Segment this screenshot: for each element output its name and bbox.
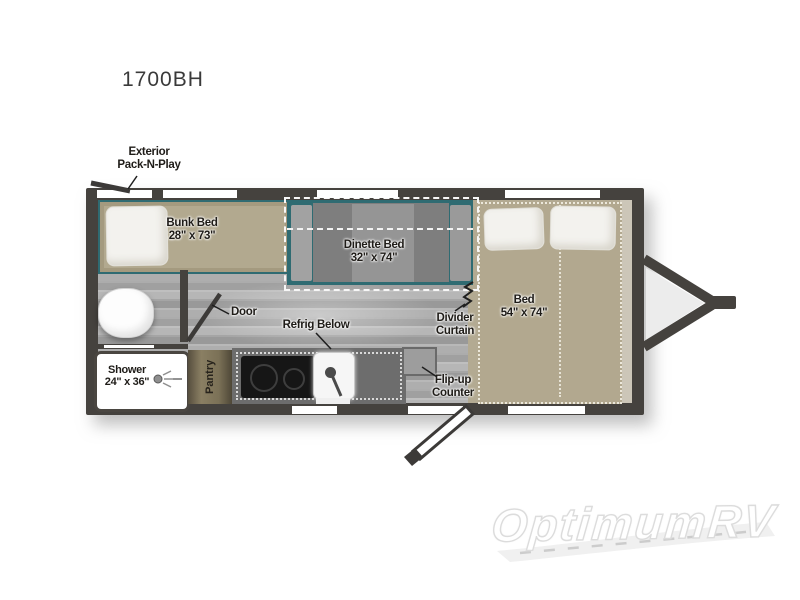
divider-curtain-label: Divider Curtain xyxy=(425,312,485,337)
window-bed-top xyxy=(505,190,600,198)
flip-up-counter xyxy=(402,347,437,376)
main-bed-name: Bed xyxy=(514,294,535,306)
window-bed-bottom xyxy=(508,406,585,414)
refrig-below-text: Refrig Below xyxy=(283,319,350,331)
refrig-below-label: Refrig Below xyxy=(266,319,366,332)
hitch-arm-top xyxy=(644,259,712,301)
dinette-armrest-right xyxy=(450,205,471,281)
burner-icon xyxy=(250,364,278,392)
dinette-bed-name: Dinette Bed xyxy=(344,239,405,251)
sink-base xyxy=(316,398,350,404)
entry-door-opening xyxy=(408,406,463,414)
dinette-bed-label: Dinette Bed 32" x 74" xyxy=(324,239,424,264)
window-bunk xyxy=(163,190,237,198)
window-dinette xyxy=(317,190,398,198)
shower-label: Shower 24" x 36" xyxy=(96,364,158,388)
flip-up-counter-label: Flip-up Counter xyxy=(423,374,483,399)
watermark-logo: OptimumRV xyxy=(489,494,778,553)
pack-n-play-opening xyxy=(97,190,152,198)
shower-name: Shower xyxy=(108,364,146,376)
bunk-bed-name: Bunk Bed xyxy=(166,217,217,229)
exterior-pack-n-play-label: Exterior Pack-N-Play xyxy=(99,146,199,171)
flip-up-line1: Flip-up xyxy=(435,374,471,386)
toilet xyxy=(98,288,154,338)
hitch-tongue-icon xyxy=(708,296,736,309)
bed-pillow-left xyxy=(483,207,544,251)
exterior-label-line2: Pack-N-Play xyxy=(117,159,180,171)
dinette-armrest-left xyxy=(291,205,312,281)
main-bed-label: Bed 54" x 74" xyxy=(474,294,574,319)
divider-line1: Divider xyxy=(437,312,474,324)
bunk-bed-size: 28" x 73" xyxy=(169,230,216,242)
hitch-arm-bottom xyxy=(644,305,712,347)
bed-pillow-right xyxy=(550,205,617,250)
window-kitchen xyxy=(292,406,337,414)
divider-line2: Curtain xyxy=(436,325,474,337)
main-bed-size: 54" x 74" xyxy=(501,307,548,319)
pantry-cabinet: Pantry xyxy=(188,350,232,404)
entry-door-endcap xyxy=(404,448,423,466)
faucet-icon xyxy=(325,367,336,378)
pantry-label: Pantry xyxy=(188,350,232,404)
floorplan-page: 1700BH Exterior Pack-N-Play Bunk Bed 28"… xyxy=(0,0,800,600)
exterior-label-line1: Exterior xyxy=(128,146,169,158)
door-label: Door xyxy=(231,306,275,319)
shower-partition-door xyxy=(104,345,154,348)
flip-up-line2: Counter xyxy=(432,387,474,399)
burner-icon xyxy=(283,368,305,390)
hitch-interior xyxy=(646,268,704,340)
bunk-bed-label: Bunk Bed 28" x 73" xyxy=(142,217,242,242)
dinette-bed-size: 32" x 74" xyxy=(351,252,398,264)
door-label-text: Door xyxy=(231,306,257,318)
dinette-fold-line xyxy=(287,228,473,230)
bathroom-wall xyxy=(180,270,188,342)
page-title: 1700BH xyxy=(122,68,204,92)
shower-size: 24" x 36" xyxy=(105,376,149,388)
